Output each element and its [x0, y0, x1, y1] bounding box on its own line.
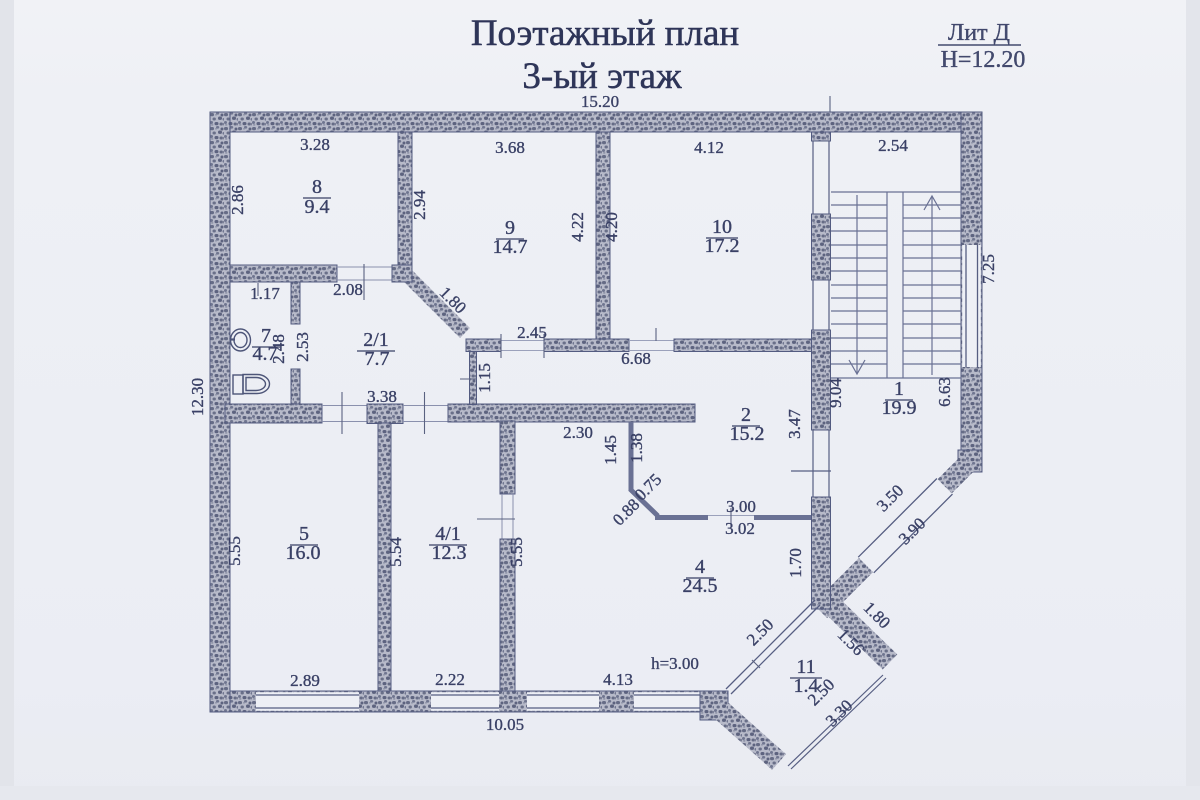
svg-text:8: 8: [312, 176, 322, 198]
svg-text:3-ый этаж: 3-ый этаж: [522, 56, 682, 97]
svg-text:2.22: 2.22: [435, 670, 465, 689]
svg-text:4.13: 4.13: [603, 670, 633, 689]
svg-text:7.7: 7.7: [365, 348, 390, 370]
svg-text:1.70: 1.70: [786, 548, 805, 578]
svg-text:2.89: 2.89: [290, 671, 320, 690]
svg-text:2.94: 2.94: [410, 190, 429, 220]
svg-text:6.68: 6.68: [621, 349, 651, 368]
svg-text:15.2: 15.2: [730, 423, 765, 445]
svg-text:2.53: 2.53: [293, 332, 312, 362]
svg-text:19.9: 19.9: [882, 397, 917, 419]
svg-text:4.20: 4.20: [602, 212, 621, 242]
svg-text:2.45: 2.45: [517, 323, 547, 342]
svg-text:14.7: 14.7: [493, 236, 528, 258]
svg-text:Н=12.20: Н=12.20: [941, 47, 1026, 73]
svg-text:Лит Д: Лит Д: [948, 20, 1010, 46]
svg-text:24.5: 24.5: [683, 575, 718, 597]
svg-text:12.3: 12.3: [432, 542, 467, 564]
svg-text:4.22: 4.22: [568, 212, 587, 242]
svg-text:9.04: 9.04: [826, 378, 845, 408]
svg-text:5.54: 5.54: [386, 537, 405, 567]
svg-text:2.48: 2.48: [269, 334, 288, 364]
svg-text:17.2: 17.2: [705, 235, 740, 257]
svg-text:h=3.00: h=3.00: [651, 654, 699, 673]
svg-text:1.17: 1.17: [250, 284, 280, 303]
svg-text:1.45: 1.45: [601, 435, 620, 465]
svg-text:6.63: 6.63: [935, 377, 954, 407]
svg-text:2.86: 2.86: [228, 185, 247, 215]
svg-text:Поэтажный план: Поэтажный план: [471, 13, 739, 54]
svg-text:1.38: 1.38: [627, 433, 646, 463]
svg-text:4.12: 4.12: [694, 138, 724, 157]
svg-text:5.55: 5.55: [507, 537, 526, 567]
svg-text:3.02: 3.02: [725, 519, 755, 538]
svg-text:7.25: 7.25: [979, 254, 998, 284]
svg-text:3.47: 3.47: [785, 409, 804, 439]
svg-text:3.00: 3.00: [726, 497, 756, 516]
svg-text:2.08: 2.08: [333, 280, 363, 299]
svg-text:15.20: 15.20: [581, 92, 619, 111]
svg-text:1.15: 1.15: [475, 363, 494, 393]
svg-text:3.38: 3.38: [367, 387, 397, 406]
svg-text:5.55: 5.55: [225, 536, 244, 566]
svg-text:16.0: 16.0: [286, 542, 321, 564]
svg-text:9.4: 9.4: [305, 196, 330, 218]
svg-text:2.30: 2.30: [563, 423, 593, 442]
svg-text:3.68: 3.68: [495, 138, 525, 157]
svg-text:10.05: 10.05: [486, 715, 524, 734]
svg-text:12.30: 12.30: [188, 378, 207, 416]
svg-text:3.28: 3.28: [300, 135, 330, 154]
svg-text:2.54: 2.54: [878, 136, 908, 155]
